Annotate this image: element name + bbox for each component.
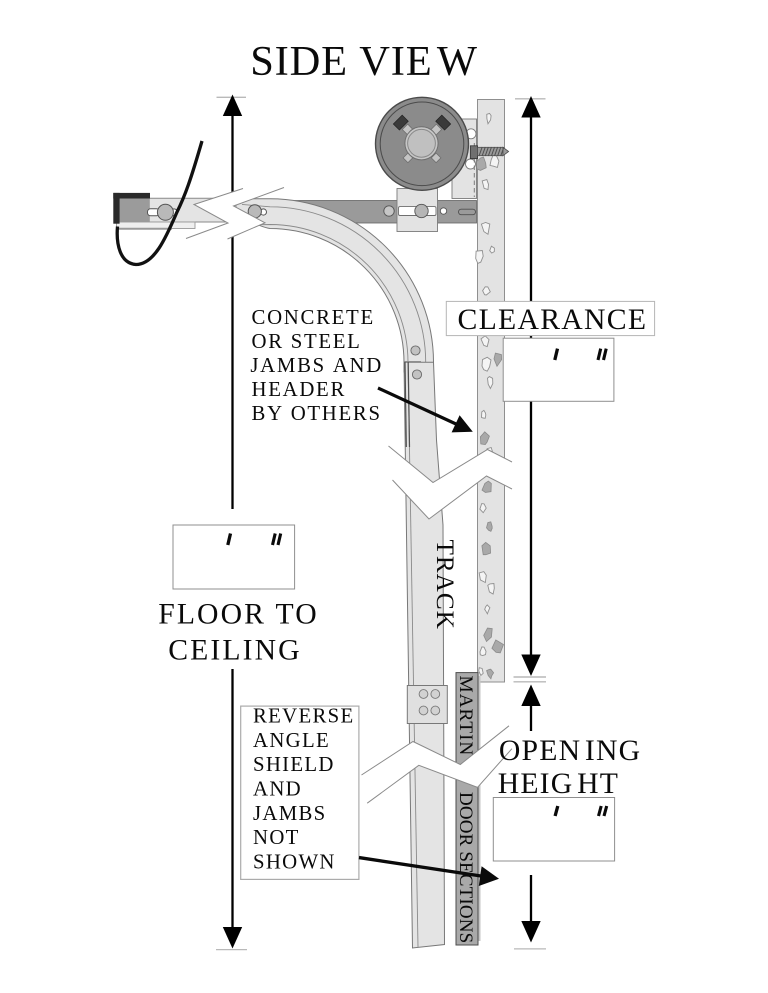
svg-text:SHOWN: SHOWN	[253, 850, 336, 873]
svg-text:NOT: NOT	[253, 826, 300, 849]
svg-text:CONCRETE: CONCRETE	[252, 306, 375, 329]
svg-text:TRACK: TRACK	[431, 540, 458, 630]
svg-text:HEIG HT: HEIG HT	[498, 768, 619, 800]
svg-text:OR STEEL: OR STEEL	[252, 330, 362, 353]
svg-text:CLEARANCE: CLEARANCE	[458, 304, 648, 336]
svg-text:BY OTHERS: BY OTHERS	[252, 402, 382, 425]
svg-text:SHIELD: SHIELD	[253, 753, 335, 776]
svg-text:JAMBS AND: JAMBS AND	[250, 354, 383, 377]
svg-text:REVERSE: REVERSE	[253, 705, 355, 728]
svg-text:JAMBS: JAMBS	[253, 802, 327, 825]
svg-text:CEILING: CEILING	[168, 634, 301, 666]
svg-text:HEADER: HEADER	[252, 378, 347, 401]
svg-text:ANGLE: ANGLE	[253, 729, 330, 752]
svg-text:MARTIN: MARTIN	[455, 676, 476, 757]
svg-text:AND: AND	[253, 778, 302, 801]
svg-text:DOOR SECTIONS: DOOR SECTIONS	[455, 792, 476, 943]
svg-text:FLOOR TO: FLOOR TO	[158, 599, 319, 631]
svg-text:OPEN ING: OPEN ING	[499, 735, 641, 767]
svg-text:SIDE VIE W: SIDE VIE W	[250, 38, 478, 85]
